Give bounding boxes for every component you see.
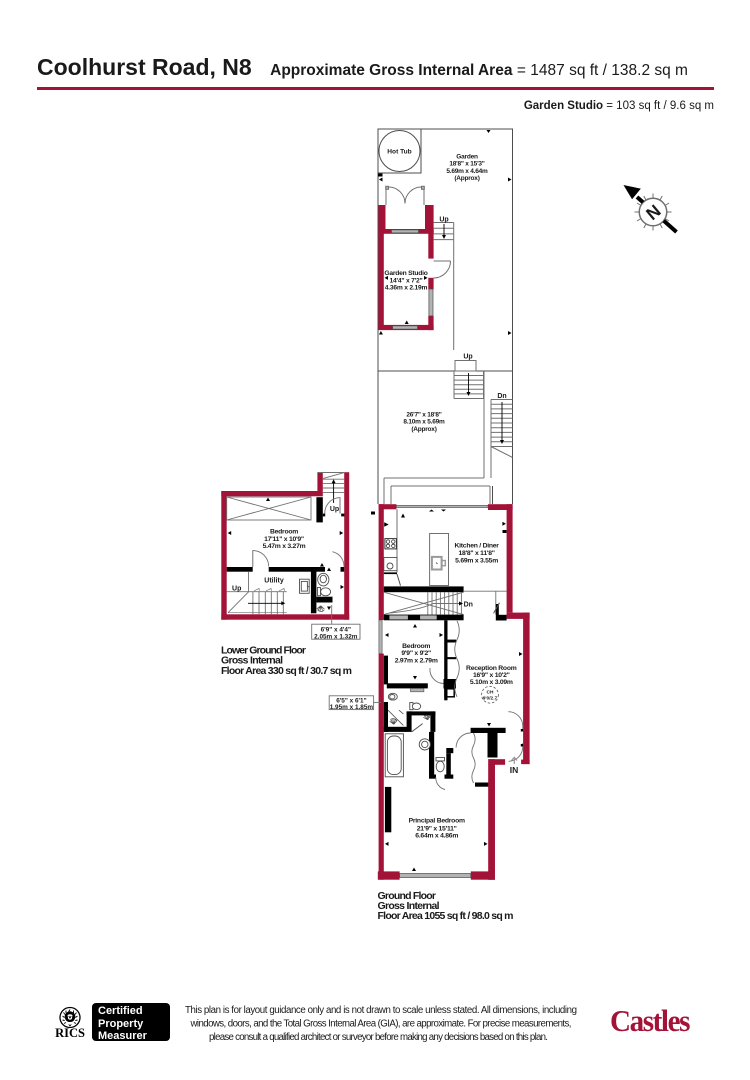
svg-text:please consult a qualified arc: please consult a qualified architect or … <box>209 1032 548 1043</box>
svg-text:Castles: Castles <box>610 1003 690 1038</box>
svg-text:windows, doors, and the Total: windows, doors, and the Total Gross Inte… <box>190 1019 572 1030</box>
svg-text:This plan is for layout guidan: This plan is for layout guidance only an… <box>185 1005 577 1016</box>
